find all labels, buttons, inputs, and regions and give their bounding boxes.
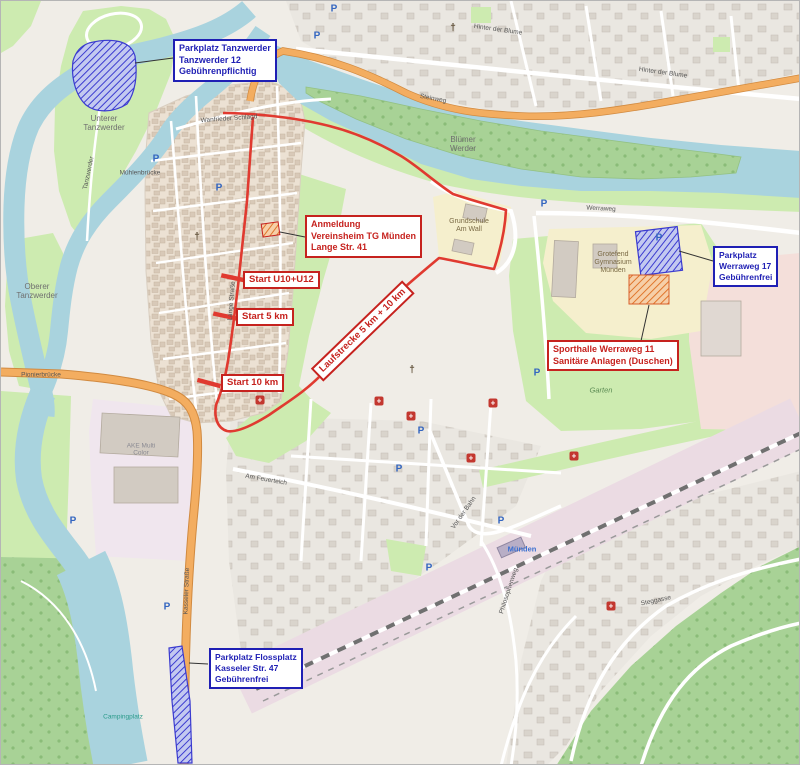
parking-tanzwerder	[73, 40, 137, 111]
sporthalle-building	[629, 275, 669, 304]
annotation-line: Start 5 km	[242, 311, 288, 322]
annotation-line: Parkplatz	[719, 250, 772, 261]
annotation-line: Sanitäre Anlagen (Duschen)	[553, 356, 673, 368]
annotation-parkplatz-werraweg: Parkplatz Werraweg 17 Gebührenfrei	[713, 246, 778, 287]
annotation-line: Gebührenpflichtig	[179, 66, 271, 78]
map: Unterer TanzwerderOberer TanzwerderBlüme…	[0, 0, 800, 765]
annotation-start-5km: Start 5 km	[236, 308, 294, 326]
annotation-line: Anmeldung	[311, 219, 416, 231]
annotation-parkplatz-tanzwerder: Parkplatz Tanzwerder Tanzwerder 12 Gebüh…	[173, 39, 277, 82]
annotation-start-u10-u12: Start U10+U12	[243, 271, 320, 289]
annotation-line: Vereinsheim TG Münden	[311, 231, 416, 243]
annotation-line: Kasseler Str. 47	[215, 663, 297, 674]
annotation-line: Sporthalle Werraweg 11	[553, 344, 673, 356]
annotation-sporthalle: Sporthalle Werraweg 11 Sanitäre Anlagen …	[547, 340, 679, 371]
annotation-parkplatz-flossplatz: Parkplatz Flossplatz Kasseler Str. 47 Ge…	[209, 648, 303, 689]
annotation-anmeldung: Anmeldung Vereinsheim TG Münden Lange St…	[305, 215, 422, 258]
annotation-line: Lange Str. 41	[311, 242, 416, 254]
annotation-line: Tanzwerder 12	[179, 55, 271, 67]
annotation-line: Werraweg 17	[719, 261, 772, 272]
annotation-line: Parkplatz Tanzwerder	[179, 43, 271, 55]
annotation-line: Start 10 km	[227, 377, 278, 388]
vereinsheim-building	[261, 222, 280, 237]
annotation-line: Start U10+U12	[249, 274, 314, 285]
annotation-start-10km: Start 10 km	[221, 374, 284, 392]
annotation-line: Gebührenfrei	[215, 674, 297, 685]
annotation-line: Gebührenfrei	[719, 272, 772, 283]
annotation-line: Parkplatz Flossplatz	[215, 652, 297, 663]
map-canvas	[1, 1, 800, 765]
parking-werraweg	[635, 227, 682, 276]
